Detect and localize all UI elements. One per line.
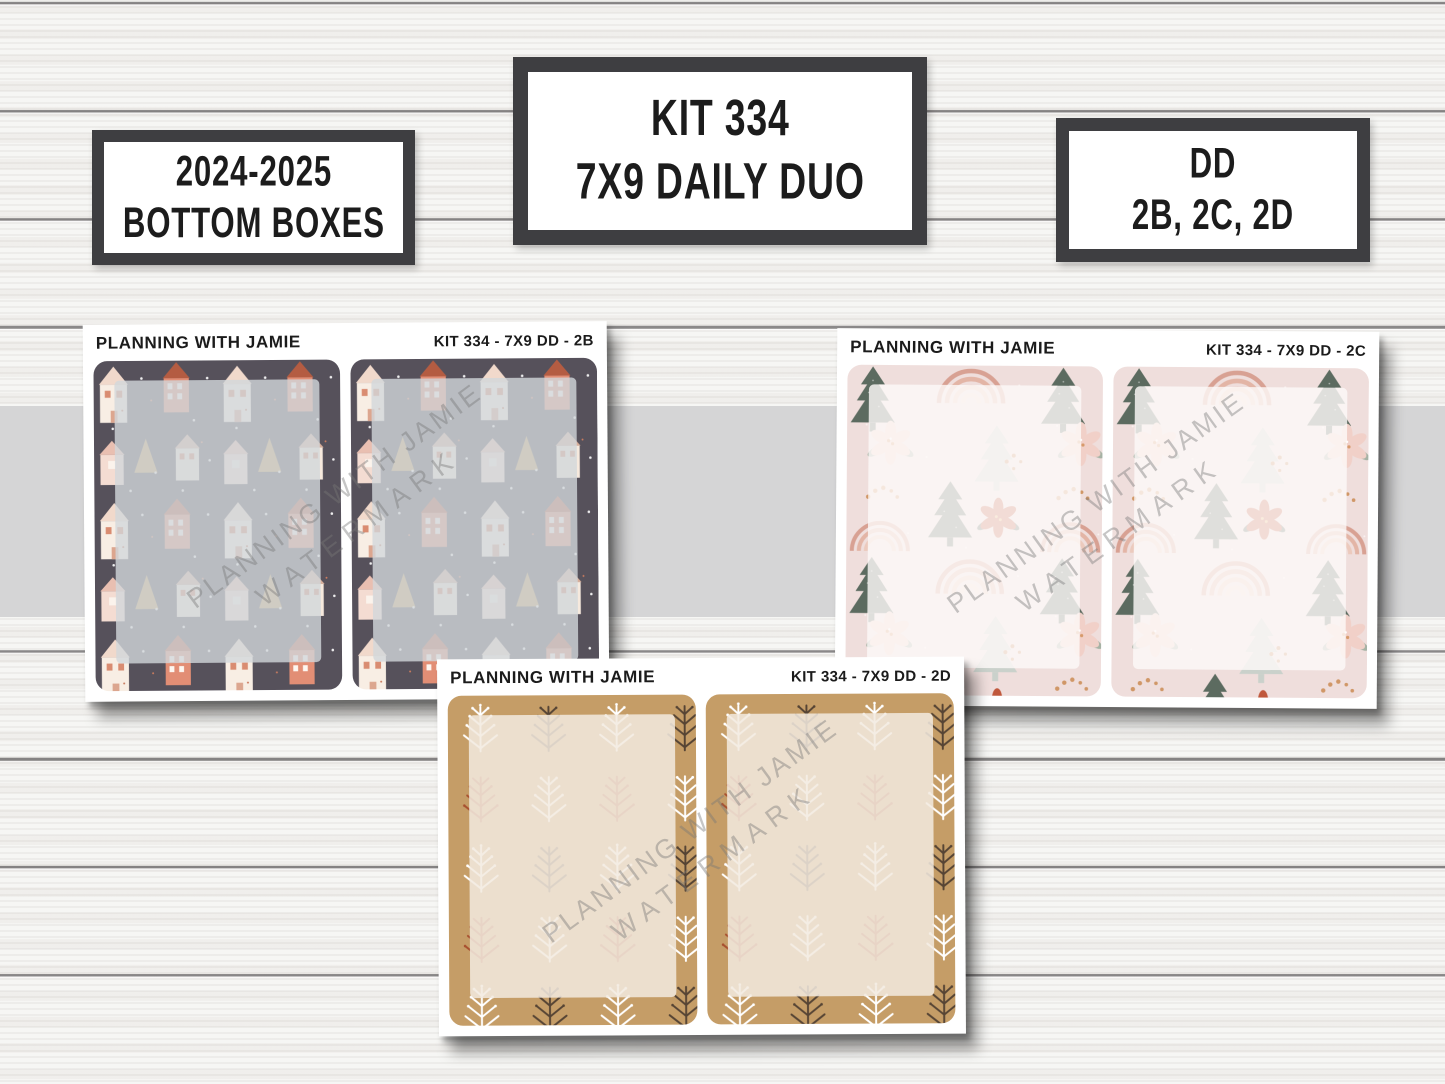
bottom-box-art-2d [705,693,956,1025]
bottom-box-sticker [845,364,1104,697]
sheet-header: PLANNING WITH JAMIE KIT 334 - 7X9 DD - 2… [96,330,594,353]
sticker-sheet-2c: PLANNING WITH JAMIE KIT 334 - 7X9 DD - 2… [835,328,1380,709]
label-line-1: KIT 334 [576,88,865,151]
sticker-boxes [447,693,956,1027]
label-line-1: 2024-2025 [123,146,385,198]
label-panel: DD 2B, 2C, 2D [1069,131,1357,249]
bottom-box-sticker [349,357,599,690]
label-dd-codes: DD 2B, 2C, 2D [1056,118,1370,262]
bottom-box-sticker [705,693,956,1025]
label-panel: 2024-2025 BOTTOM BOXES [104,142,403,253]
bottom-box-sticker [447,694,698,1026]
label-line-2: 7X9 DAILY DUO [576,151,865,214]
bottom-box-art-2d [447,694,698,1026]
kit-code-text: KIT 334 - 7X9 DD - 2B [434,332,594,350]
label-line-2: BOTTOM BOXES [123,198,385,250]
bottom-box-art-2b [349,357,599,690]
bottom-box-art-2c [845,364,1104,697]
bottom-box-art-2c [1110,366,1369,699]
sticker-boxes [93,357,599,692]
brand-text: PLANNING WITH JAMIE [450,667,655,688]
bottom-box-sticker [1110,366,1369,699]
bottom-box-art-2b [93,359,343,692]
brand-text: PLANNING WITH JAMIE [850,337,1055,358]
label-line-2: 2B, 2C, 2D [1132,190,1294,242]
label-line-1: DD [1132,138,1294,190]
label-bottom-boxes: 2024-2025 BOTTOM BOXES [92,130,415,265]
product-image: 2024-2025 BOTTOM BOXES KIT 334 7X9 DAILY… [0,0,1445,1084]
sheet-header: PLANNING WITH JAMIE KIT 334 - 7X9 DD - 2… [850,337,1366,361]
bottom-box-sticker [93,359,343,692]
kit-code-text: KIT 334 - 7X9 DD - 2C [1206,342,1366,360]
sticker-sheet-2b: PLANNING WITH JAMIE KIT 334 - 7X9 DD - 2… [83,321,610,702]
sticker-sheet-2d: PLANNING WITH JAMIE KIT 334 - 7X9 DD - 2… [437,657,966,1037]
label-panel: KIT 334 7X9 DAILY DUO [528,72,912,230]
label-kit-title: KIT 334 7X9 DAILY DUO [513,57,927,245]
sticker-boxes [845,364,1369,699]
kit-code-text: KIT 334 - 7X9 DD - 2D [791,668,951,686]
brand-text: PLANNING WITH JAMIE [96,332,301,353]
sheet-header: PLANNING WITH JAMIE KIT 334 - 7X9 DD - 2… [450,666,951,689]
